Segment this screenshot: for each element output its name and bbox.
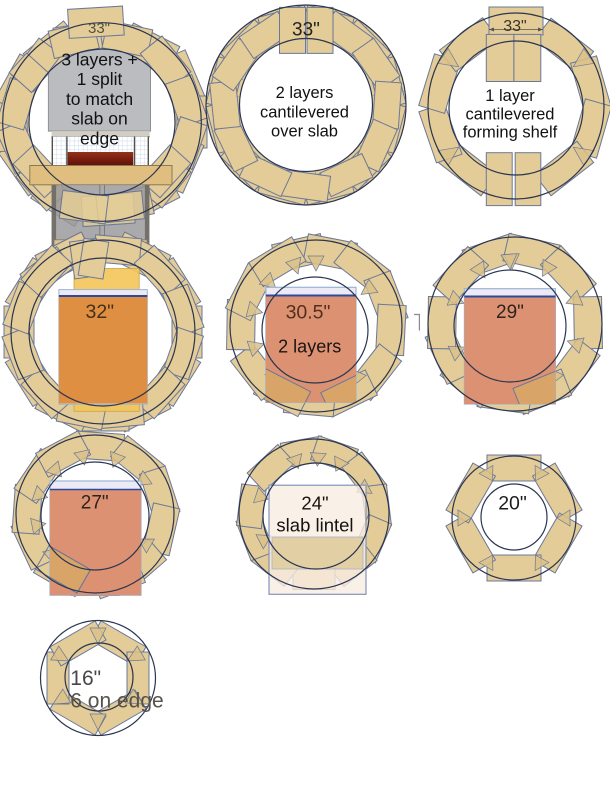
svg-text:33": 33" <box>88 20 110 37</box>
svg-text:forming shelf: forming shelf <box>463 124 558 142</box>
svg-text:30.5": 30.5" <box>286 301 331 323</box>
svg-text:33": 33" <box>292 20 320 41</box>
svg-text:1 split: 1 split <box>77 69 123 89</box>
svg-text:3 layers +: 3 layers + <box>61 50 137 70</box>
svg-text:cantilevered: cantilevered <box>260 103 349 121</box>
svg-text:edge: edge <box>80 128 119 148</box>
svg-text:16": 16" <box>70 667 101 690</box>
svg-text:slab on: slab on <box>71 109 127 129</box>
svg-text:2 layers: 2 layers <box>278 337 341 357</box>
svg-text:27": 27" <box>81 493 109 514</box>
svg-text:2 layers: 2 layers <box>276 84 334 102</box>
svg-text:29": 29" <box>496 302 524 323</box>
svg-text:6 on edge: 6 on edge <box>70 689 163 712</box>
svg-text:20": 20" <box>498 492 527 514</box>
svg-text:24": 24" <box>301 492 328 513</box>
svg-text:to match: to match <box>66 89 133 109</box>
svg-text:slab lintel: slab lintel <box>276 515 353 536</box>
svg-text:33": 33" <box>503 18 526 35</box>
svg-text:over slab: over slab <box>271 123 338 141</box>
svg-text:32": 32" <box>85 301 114 323</box>
svg-text:1 layer: 1 layer <box>485 87 535 105</box>
svg-text:cantilevered: cantilevered <box>466 105 555 123</box>
